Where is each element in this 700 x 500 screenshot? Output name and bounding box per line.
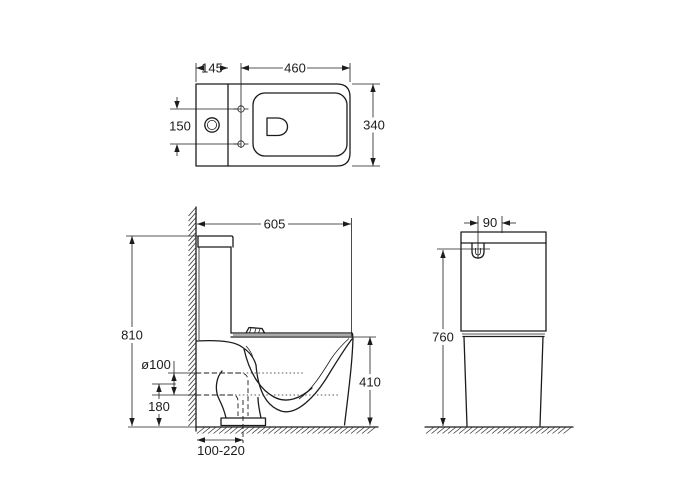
dim-label-outlet-diameter: ø100 [141,357,171,372]
dim-label-overall-height: 810 [121,328,143,343]
floor-hatching-front [426,428,571,434]
dim-label-rim-height: 410 [359,375,381,390]
dim-inlet-offset: 90 [464,215,516,233]
flush-button-inner [207,120,216,129]
dim-outlet-height: 180 [148,384,170,426]
dim-label-seat-length: 460 [284,61,306,76]
dim-label-inlet-offset: 90 [483,215,497,230]
base-front [464,337,543,426]
front-view: 90 760 [425,215,573,434]
wall-hatching [189,208,196,426]
dim-label-outlet-height: 180 [148,399,170,414]
dim-label-cistern-height: 760 [432,330,454,345]
outlet-pipe-hidden [196,373,340,443]
technical-drawing: 145 460 150 340 [0,0,700,500]
dim-label-overall-depth: 605 [264,217,286,232]
bowl-profile [197,337,353,426]
dim-outlet-setout: 100-220 [197,437,245,458]
seat-profile [231,333,353,337]
seat-hinge [246,328,265,334]
dim-rim-height: 410 [352,337,381,426]
dim-label-overall-width: 340 [363,118,385,133]
top-view: 145 460 150 340 [169,61,385,167]
dim-outlet-diameter: ø100 [141,357,196,395]
cistern-profile [198,236,233,340]
dim-label-tank-width: 145 [201,61,223,76]
dim-seat-length: 460 [241,61,350,83]
flush-button-outer [205,118,219,132]
dim-label-hole-spacing: 150 [169,119,191,134]
cistern-front [461,232,546,337]
side-view: 605 810 ø100 180 [121,207,381,458]
dim-overall-depth: 605 [197,217,352,337]
dim-label-outlet-setout: 100-220 [197,443,245,458]
floor-hatching-side [197,428,375,434]
drawing-canvas: 145 460 150 340 [0,0,700,500]
dim-overall-height: 810 [121,236,199,426]
water-spot-shape [267,118,288,136]
dim-overall-width: 340 [352,84,385,166]
dim-tank-width: 145 [196,61,228,83]
